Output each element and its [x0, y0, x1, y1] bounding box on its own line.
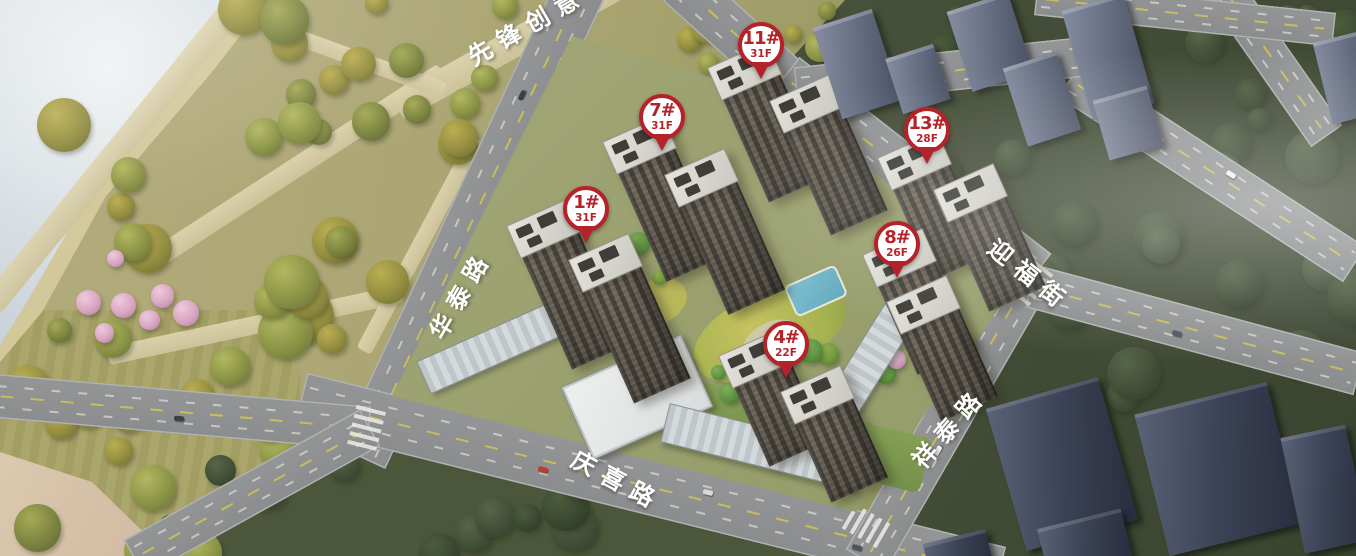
floor-count-label: 31F [651, 121, 673, 132]
building-marker-1[interactable]: 1#31F [563, 186, 609, 243]
building-number-label: 11# [742, 30, 779, 48]
building-marker-8[interactable]: 8#26F [874, 221, 920, 278]
marker-pointer [577, 226, 595, 243]
floor-count-label: 26F [886, 248, 908, 259]
building-number-label: 7# [649, 102, 675, 120]
building-markers: 1#31F4#22F7#31F8#26F11#31F13#28F [0, 0, 1356, 556]
floor-count-label: 22F [775, 348, 797, 359]
building-number-label: 13# [908, 115, 945, 133]
building-number-label: 4# [773, 329, 799, 347]
floor-count-label: 31F [575, 213, 597, 224]
building-marker-11[interactable]: 11#31F [738, 22, 784, 79]
building-number-label: 8# [884, 229, 910, 247]
marker-pointer [653, 134, 671, 151]
building-marker-13[interactable]: 13#28F [904, 107, 950, 164]
marker-pointer [777, 361, 795, 378]
floor-count-label: 28F [916, 134, 938, 145]
building-number-label: 1# [573, 194, 599, 212]
floor-count-label: 31F [750, 49, 772, 60]
marker-pointer [918, 147, 936, 164]
marker-pointer [888, 261, 906, 278]
building-marker-4[interactable]: 4#22F [763, 321, 809, 378]
aerial-masterplan: 先锋创意华泰路迎福街祥泰路庆喜路 1#31F4#22F7#31F8#26F11#… [0, 0, 1356, 556]
marker-pointer [752, 62, 770, 79]
building-marker-7[interactable]: 7#31F [639, 94, 685, 151]
